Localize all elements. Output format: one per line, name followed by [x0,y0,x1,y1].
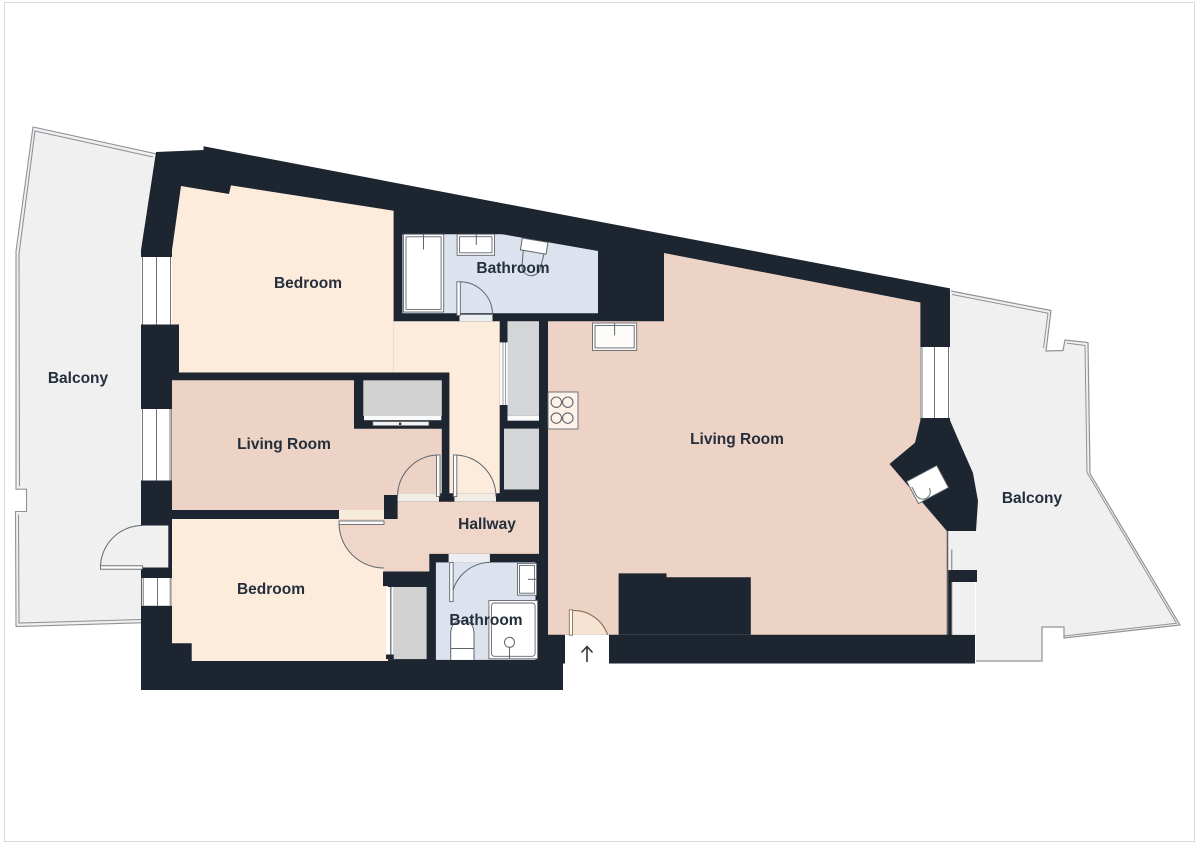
svg-text:Balcony: Balcony [1002,490,1063,507]
svg-text:Hallway: Hallway [458,516,516,533]
svg-text:Bedroom: Bedroom [237,581,305,598]
svg-text:Bedroom: Bedroom [274,275,342,292]
svg-text:Bathroom: Bathroom [449,612,522,629]
svg-text:Balcony: Balcony [48,370,109,387]
svg-text:Living Room: Living Room [690,431,784,448]
svg-text:Bathroom: Bathroom [476,260,549,277]
svg-text:Living Room: Living Room [237,436,331,453]
